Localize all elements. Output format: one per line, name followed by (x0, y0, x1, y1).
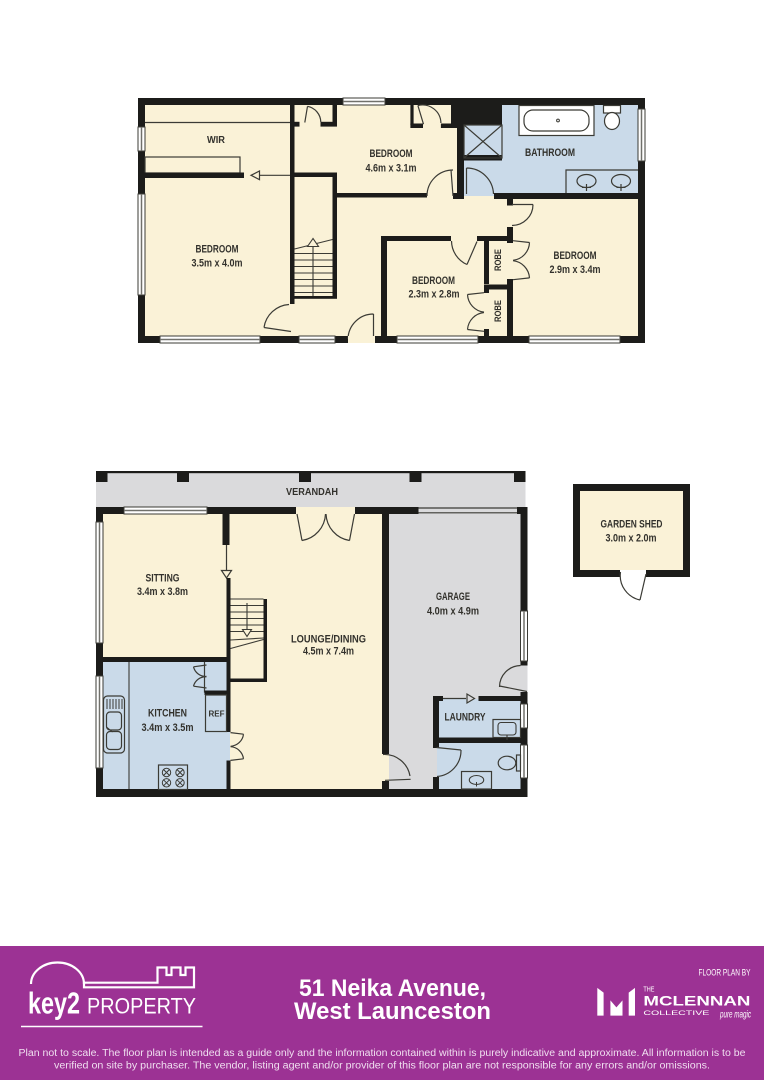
svg-text:ROBE: ROBE (493, 249, 503, 271)
svg-text:REF: REF (209, 710, 225, 719)
svg-text:3.0m x 2.0m: 3.0m x 2.0m (606, 533, 657, 545)
svg-text:LAUNDRY: LAUNDRY (445, 712, 487, 724)
svg-text:THE: THE (643, 987, 654, 994)
svg-text:BEDROOM: BEDROOM (412, 275, 455, 287)
svg-text:VERANDAH: VERANDAH (286, 487, 338, 498)
svg-text:GARDEN SHED: GARDEN SHED (601, 519, 663, 531)
svg-text:ROBE: ROBE (493, 300, 503, 322)
svg-text:4.0m x 4.9m: 4.0m x 4.9m (427, 606, 479, 618)
svg-text:4.5m x 7.4m: 4.5m x 7.4m (303, 646, 354, 658)
svg-text:COLLECTIVE: COLLECTIVE (643, 1010, 710, 1017)
svg-text:BATHROOM: BATHROOM (525, 147, 575, 159)
svg-text:GARAGE: GARAGE (436, 591, 470, 603)
svg-text:2.3m x 2.8m: 2.3m x 2.8m (409, 289, 460, 301)
svg-text:pure magic: pure magic (719, 1009, 751, 1021)
svg-text:3.4m x 3.5m: 3.4m x 3.5m (142, 722, 194, 734)
svg-text:LOUNGE/DINING: LOUNGE/DINING (291, 634, 366, 646)
svg-text:PROPERTY: PROPERTY (87, 994, 196, 1019)
svg-text:WIR: WIR (207, 135, 226, 146)
svg-text:KITCHEN: KITCHEN (148, 708, 187, 720)
svg-text:FLOOR PLAN BY: FLOOR PLAN BY (699, 968, 751, 978)
svg-text:BEDROOM: BEDROOM (370, 148, 413, 160)
svg-text:4.6m x 3.1m: 4.6m x 3.1m (366, 163, 417, 175)
svg-text:West Launceston: West Launceston (294, 998, 491, 1025)
svg-text:3.4m x 3.8m: 3.4m x 3.8m (137, 586, 188, 598)
svg-text:BEDROOM: BEDROOM (196, 244, 239, 256)
svg-text:3.5m x 4.0m: 3.5m x 4.0m (192, 258, 243, 270)
svg-text:key2: key2 (28, 986, 80, 1021)
svg-text:MCLENNAN: MCLENNAN (643, 994, 750, 1009)
svg-text:Plan not to scale. The floor p: Plan not to scale. The floor plan is int… (19, 1048, 746, 1059)
svg-text:BEDROOM: BEDROOM (554, 250, 597, 262)
svg-text:SITTING: SITTING (146, 573, 180, 585)
svg-text:verified on site by purchaser.: verified on site by purchaser. The vendo… (54, 1061, 710, 1072)
svg-text:2.9m x 3.4m: 2.9m x 3.4m (550, 264, 601, 276)
